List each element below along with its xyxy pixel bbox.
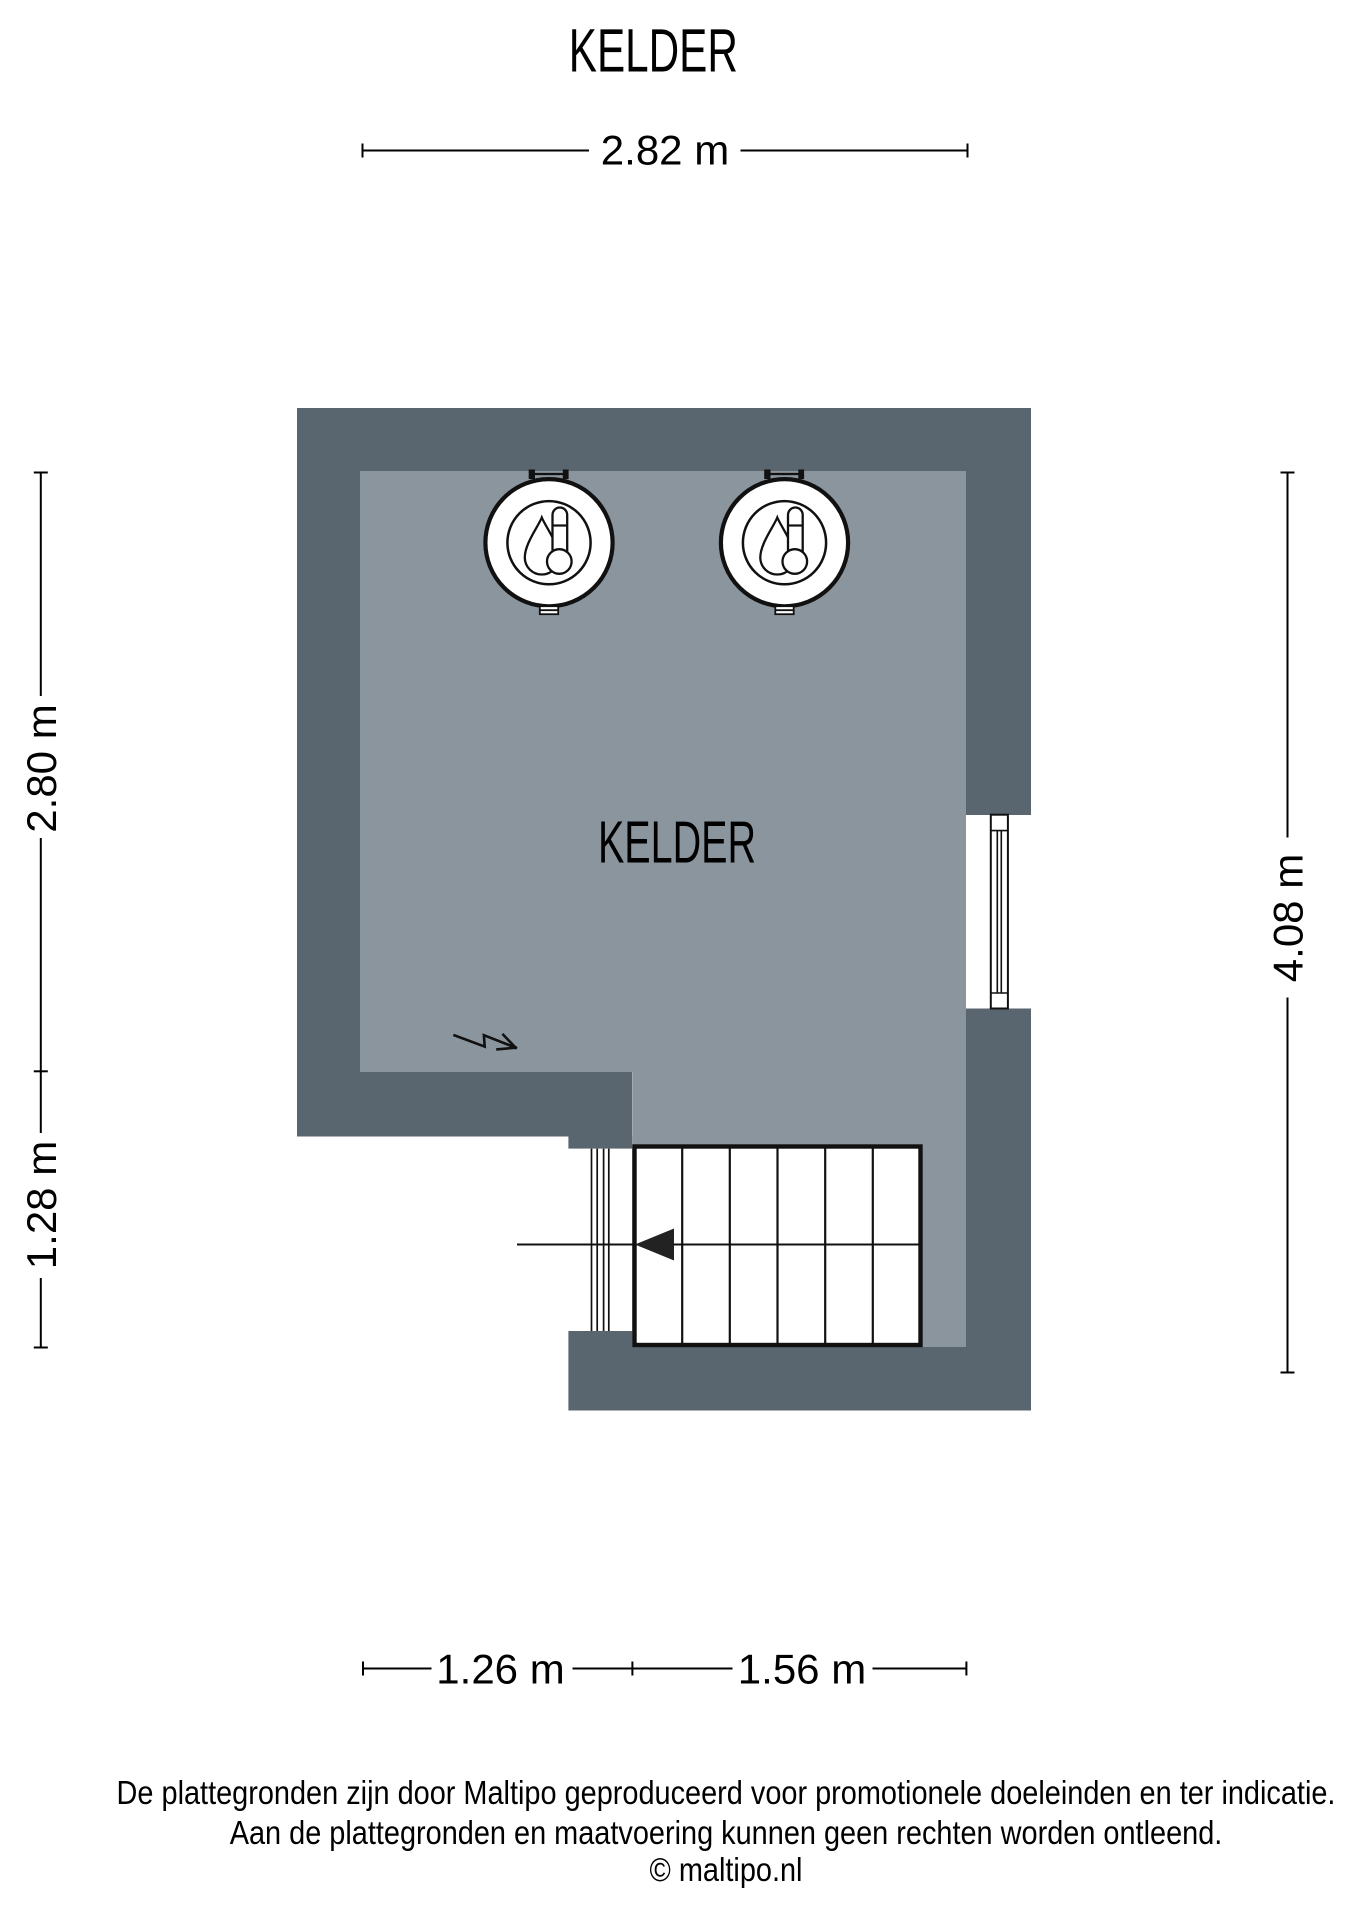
- svg-text:2.82 m: 2.82 m: [601, 127, 729, 174]
- svg-text:© maltipo.nl: © maltipo.nl: [650, 1851, 803, 1888]
- svg-text:1.56 m: 1.56 m: [738, 1645, 866, 1692]
- svg-text:1.26 m: 1.26 m: [436, 1645, 564, 1692]
- svg-text:4.08 m: 4.08 m: [1265, 854, 1312, 982]
- svg-text:2.80 m: 2.80 m: [18, 704, 65, 832]
- svg-text:Aan de plattegronden en maatvo: Aan de plattegronden en maatvoering kunn…: [230, 1814, 1223, 1851]
- svg-text:1.28 m: 1.28 m: [18, 1141, 65, 1269]
- svg-text:De plattegronden zijn door Mal: De plattegronden zijn door Maltipo gepro…: [117, 1774, 1336, 1811]
- svg-text:KELDER: KELDER: [598, 810, 756, 876]
- svg-text:KELDER: KELDER: [569, 17, 738, 86]
